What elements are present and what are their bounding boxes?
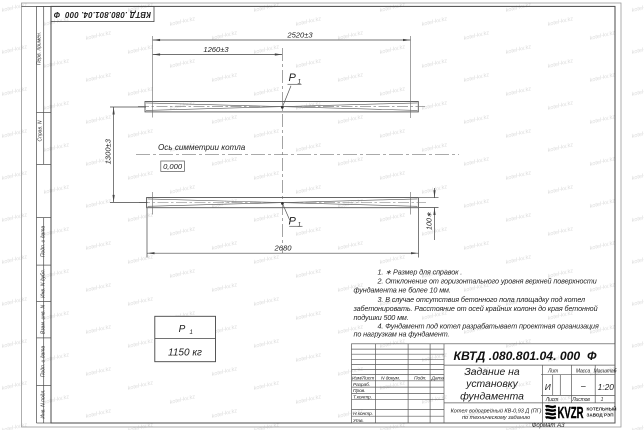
svg-text:Ось симметрии котла: Ось симметрии котла [158, 143, 246, 152]
svg-text:И: И [545, 382, 551, 392]
svg-text:0,000: 0,000 [163, 162, 183, 171]
svg-text:забетонировать. Расстояние от: забетонировать. Расстояние от осей крайн… [353, 304, 598, 313]
svg-text:100∗: 100∗ [425, 212, 434, 230]
svg-text:Изм/Лист: Изм/Лист [352, 376, 374, 382]
svg-text:1260±3: 1260±3 [203, 45, 229, 54]
svg-text:Инв. N дубл.: Инв. N дубл. [41, 269, 47, 298]
svg-text:1: 1 [298, 79, 302, 86]
svg-text:Т.контр.: Т.контр. [353, 395, 372, 401]
svg-text:Листов: Листов [571, 397, 590, 403]
svg-text:Масса: Масса [576, 368, 591, 374]
svg-text:Котел водогрейный КВ-0,93 Д (: Котел водогрейный КВ-0,93 Д (ПГ) [451, 408, 542, 415]
svg-text:Лист: Лист [545, 397, 558, 403]
svg-text:Справ. N: Справ. N [38, 120, 44, 141]
svg-text:N докум.: N докум. [381, 376, 400, 382]
svg-text:Перв. примен.: Перв. примен. [37, 32, 43, 65]
svg-text:установку: установку [465, 379, 519, 390]
svg-text:КВТД .080.801.04. 000 Ф: КВТД .080.801.04. 000 Ф [454, 349, 597, 363]
svg-text:Масштаб: Масштаб [594, 368, 617, 374]
svg-text:ЗАВОД РЭП: ЗАВОД РЭП [587, 413, 614, 418]
svg-text:1: 1 [190, 330, 193, 336]
svg-text:–: – [580, 381, 586, 391]
svg-text:2. Отклонение от горизонтально: 2. Отклонение от горизонтального уровня … [377, 276, 597, 285]
svg-text:КВТД .080.801.04. 000 Ф: КВТД .080.801.04. 000 Ф [53, 10, 151, 19]
svg-text:Утв.: Утв. [353, 418, 364, 424]
svg-text:Задание на: Задание на [464, 367, 520, 378]
svg-text:P: P [289, 72, 297, 84]
svg-text:Н.контр.: Н.контр. [353, 411, 373, 417]
svg-text:фундамента не более 10 мм.: фундамента не более 10 мм. [354, 286, 451, 295]
svg-text:1300±3: 1300±3 [103, 138, 112, 164]
svg-text:Пров.: Пров. [353, 388, 365, 394]
svg-text:Подп. и дата: Подп. и дата [41, 346, 47, 378]
svg-text:1150 кг: 1150 кг [168, 348, 202, 359]
svg-text:1:20: 1:20 [598, 382, 615, 392]
svg-text:по нагрузкам на фундамент.: по нагрузкам на фундамент. [354, 330, 450, 339]
svg-text:Дата: Дата [431, 376, 445, 382]
svg-text:по техническому заданию: по техническому заданию [462, 415, 530, 421]
svg-text:Взам. инв. N: Взам. инв. N [41, 305, 47, 335]
svg-text:3. В случае отсутствия бетонно: 3. В случае отсутствия бетонного пола пл… [378, 295, 586, 304]
svg-text:2680: 2680 [274, 244, 293, 253]
svg-text:KVZR: KVZR [558, 405, 584, 422]
svg-text:Формат А3: Формат А3 [532, 423, 565, 429]
svg-text:2520±3: 2520±3 [286, 31, 313, 40]
svg-text:P: P [289, 216, 297, 228]
svg-text:Подп. и дата: Подп. и дата [41, 226, 47, 258]
svg-text:1: 1 [298, 222, 302, 229]
svg-text:Разраб.: Разраб. [353, 382, 370, 388]
svg-text:фундамента: фундамента [460, 390, 524, 402]
svg-text:Подп.: Подп. [414, 376, 427, 382]
svg-text:КОТЕЛЬНЫЙ: КОТЕЛЬНЫЙ [587, 405, 617, 412]
svg-text:P: P [179, 324, 186, 335]
svg-text:1: 1 [601, 397, 604, 403]
svg-text:Лит: Лит [547, 368, 558, 374]
svg-text:Инв. N подл.: Инв. N подл. [41, 389, 47, 418]
